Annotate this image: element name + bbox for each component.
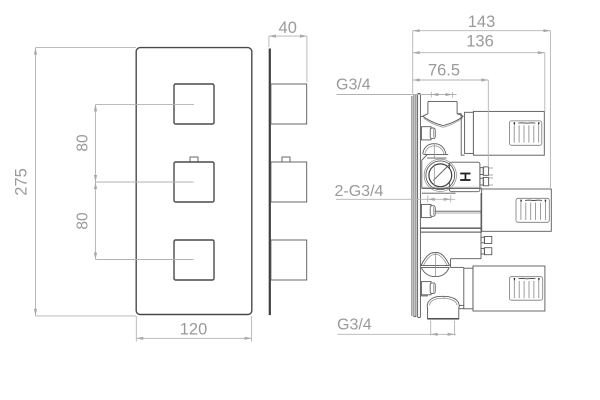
svg-text:2-G3/4: 2-G3/4 bbox=[335, 183, 384, 200]
svg-text:G3/4: G3/4 bbox=[336, 77, 371, 94]
svg-text:80: 80 bbox=[75, 212, 92, 230]
svg-text:G3/4: G3/4 bbox=[337, 317, 372, 334]
svg-text:80: 80 bbox=[75, 134, 92, 152]
svg-text:76.5: 76.5 bbox=[428, 62, 460, 80]
svg-text:143: 143 bbox=[468, 13, 496, 31]
svg-text:136: 136 bbox=[466, 32, 494, 50]
svg-text:120: 120 bbox=[180, 321, 208, 339]
svg-text:40: 40 bbox=[279, 19, 297, 37]
svg-text:275: 275 bbox=[13, 168, 31, 196]
